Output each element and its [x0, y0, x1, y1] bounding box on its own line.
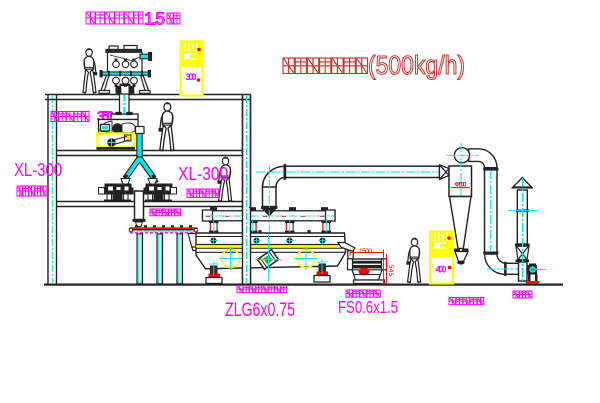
svg-text:400: 400 [436, 265, 447, 275]
svg-text:300: 300 [186, 72, 197, 82]
svg-text:(500kg/h): (500kg/h) [368, 52, 465, 80]
svg-text:545: 545 [387, 265, 393, 277]
svg-text:XL-300: XL-300 [14, 159, 62, 180]
svg-text:1500: 1500 [359, 248, 372, 255]
svg-text:XL-300: XL-300 [178, 163, 228, 184]
svg-text:1.5: 1.5 [144, 9, 165, 29]
svg-text:FS0.6x1.5: FS0.6x1.5 [338, 297, 398, 317]
svg-text:ZLG6x0.75: ZLG6x0.75 [225, 300, 295, 321]
